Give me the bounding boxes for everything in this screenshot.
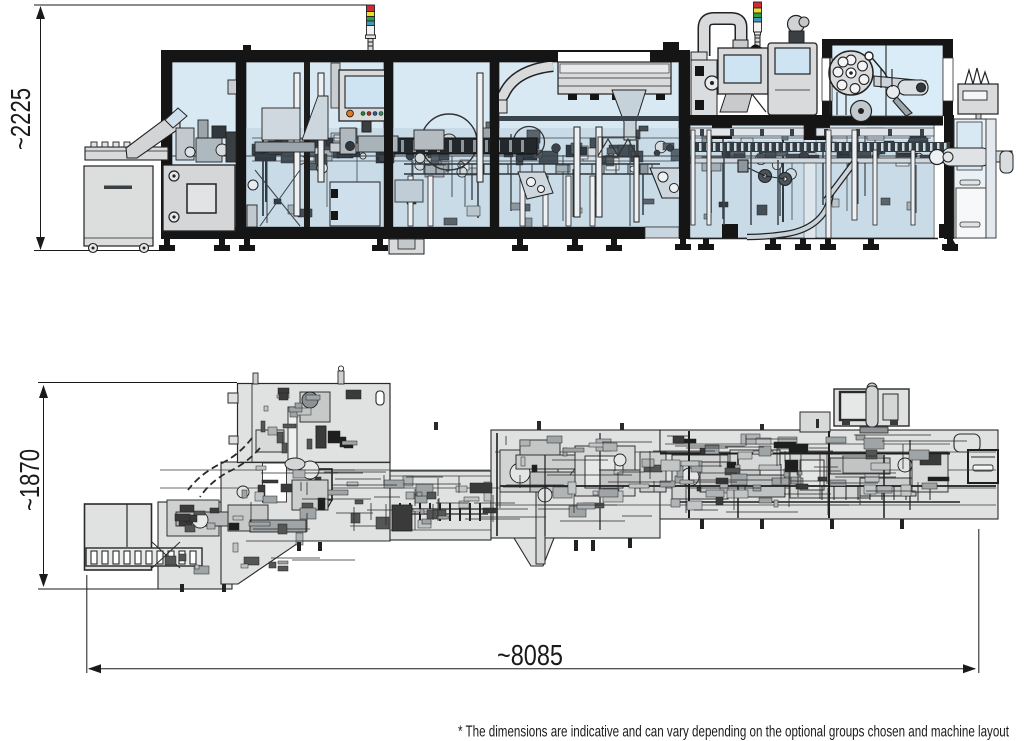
svg-text:~1870: ~1870	[14, 449, 45, 511]
svg-text:~8085: ~8085	[497, 640, 563, 672]
svg-text:* The dimensions are indicativ: * The dimensions are indicative and can …	[458, 724, 1009, 741]
svg-text:~2225: ~2225	[5, 88, 36, 150]
